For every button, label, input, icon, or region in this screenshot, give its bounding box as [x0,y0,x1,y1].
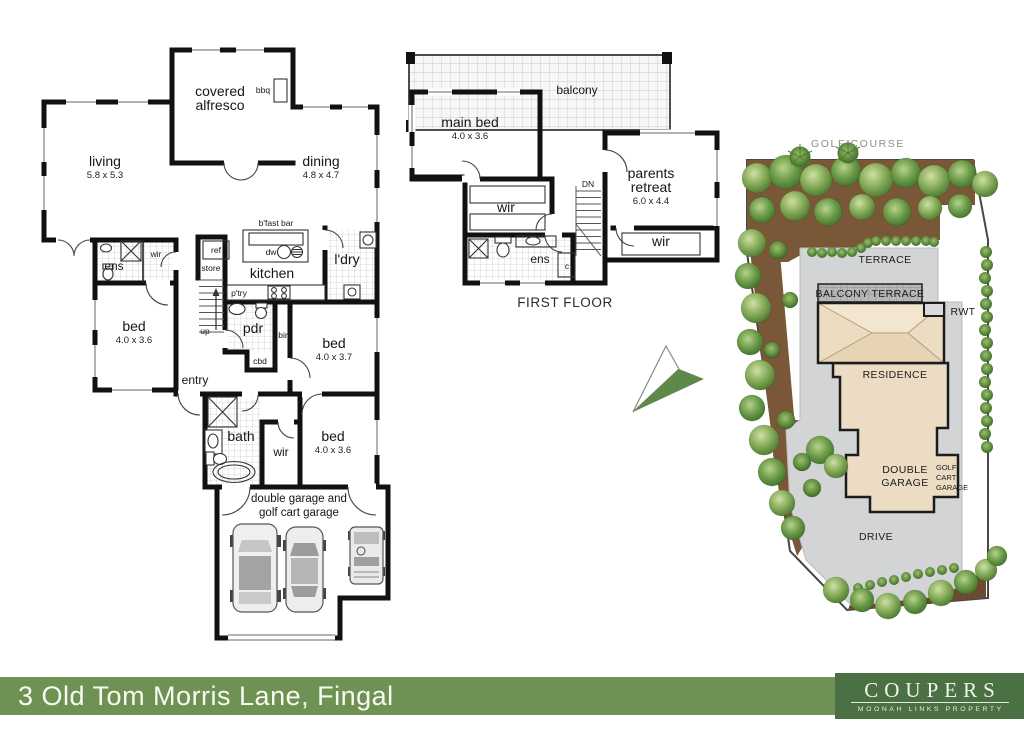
label-golf-cart-3: GARAGE [936,483,968,492]
label-wir-parents: wir [651,233,670,249]
label-balcony-terrace: BALCONY TERRACE [816,288,925,300]
label-cbd: cbd [253,356,267,366]
label-wir-ens: wir [150,249,162,259]
label-bed1: bed [122,318,145,334]
label-wir-main: wir [496,199,515,215]
label-bath: bath [227,428,254,444]
label-garage-2: golf cart garage [259,507,339,519]
label-bfast-bar: b'fast bar [259,218,294,228]
label-dw: dw [266,247,278,257]
label-living-dims: 5.8 x 5.3 [87,170,123,181]
label-main-bed: main bed [441,114,499,130]
label-drive: DRIVE [859,531,893,543]
label-ptry: p'try [231,288,248,298]
label-residence: RESIDENCE [863,369,928,381]
label-covered-alfresco-2: alfresco [195,97,244,113]
label-ldry: l'dry [334,251,359,267]
label-bed1-dims: 4.0 x 3.6 [116,335,152,346]
label-bir: bir [278,330,288,340]
label-wir-bed3: wir [272,445,288,459]
label-ens-ground: ens [104,259,123,273]
label-double-garage-1: DOUBLE [882,464,928,476]
label-up: up [200,326,210,336]
residence-roof [818,303,944,363]
label-living: living [89,153,121,169]
label-rwt: RWT [951,306,976,318]
property-address: 3 Old Tom Morris Lane, Fingal [18,677,394,715]
label-pdr: pdr [243,320,264,336]
label-parents-2: retreat [631,179,672,195]
label-store: store [202,263,221,273]
first-floor-title: FIRST FLOOR [517,295,613,310]
floorplan-drawing: covered alfresco bbq living 5.8 x 5.3 di… [0,0,1024,755]
logo-title: COUPERS [858,679,1001,701]
label-main-bed-dims: 4.0 x 3.6 [452,131,488,142]
label-terrace: TERRACE [859,254,912,266]
label-double-garage-2: GARAGE [881,477,928,489]
label-kitchen: kitchen [250,265,294,281]
label-dn: DN [582,179,594,189]
label-golf-cart-2: CART [936,473,957,482]
label-dining-dims: 4.8 x 4.7 [303,170,339,181]
property-floorplan-image: covered alfresco bbq living 5.8 x 5.3 di… [0,0,1024,755]
label-ref: ref [211,245,222,255]
label-golf-course: GOLF COURSE [811,138,905,150]
label-garage-1: double garage and [251,493,347,505]
label-parents-dims: 6.0 x 4.4 [633,196,669,207]
label-bed2: bed [322,335,345,351]
first-ens-floor [466,236,573,282]
golf-cart [348,527,385,584]
label-entry: entry [182,373,209,387]
rainwater-tank [924,303,944,316]
label-bed3: bed [321,428,344,444]
label-golf-cart-1: GOLF [936,463,957,472]
car-suv [230,524,281,612]
label-ens-first: ens [530,252,549,266]
label-dining: dining [302,153,339,169]
label-bed2-dims: 4.0 x 3.7 [316,352,352,363]
label-bed3-dims: 4.0 x 3.6 [315,445,351,456]
label-bbq: bbq [256,85,270,95]
label-balcony: balcony [556,83,597,97]
car-sedan [283,527,326,612]
logo-subtitle: MOONAH LINKS PROPERTY [855,706,1003,713]
logo-divider [851,702,1009,703]
coupers-logo: COUPERS MOONAH LINKS PROPERTY [835,673,1024,719]
